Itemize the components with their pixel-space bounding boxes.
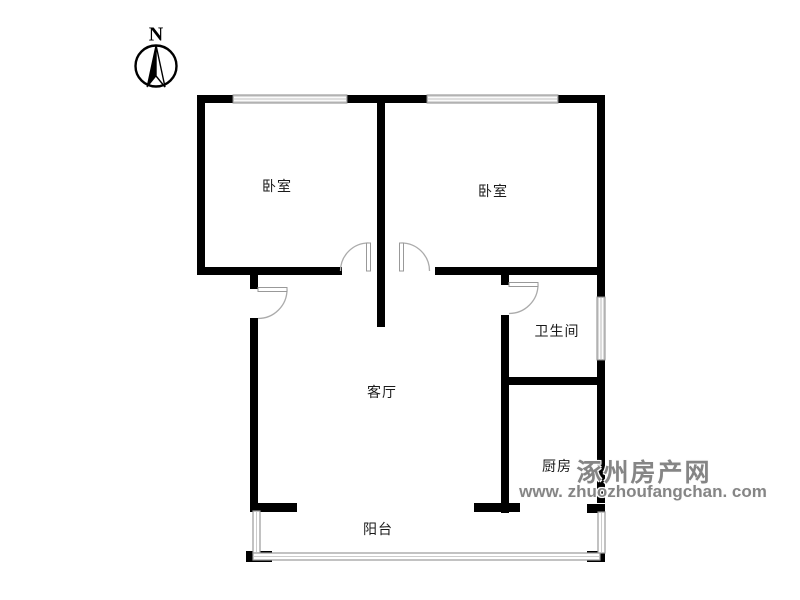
watermark-url: www. zhuozhoufangchan. com xyxy=(519,482,767,502)
wall-top-middle-segment xyxy=(347,95,427,103)
compass-needle-light xyxy=(156,45,165,87)
room-label-bedroom-left: 卧室 xyxy=(262,176,292,196)
window-top-right xyxy=(427,95,558,103)
door-bedroom-left xyxy=(341,243,371,271)
balcony-railing xyxy=(253,511,605,560)
wall-bedrooms-bottom-right xyxy=(435,267,605,275)
wall-bathroom-bottom xyxy=(501,377,605,385)
wall-kitchen-left xyxy=(501,385,509,513)
compass-north-label: N xyxy=(149,24,163,47)
wall-bottom-middle-segment xyxy=(474,503,520,512)
wall-left-exterior xyxy=(197,95,205,275)
door-bathroom xyxy=(509,283,538,314)
room-label-kitchen: 厨房 xyxy=(542,456,572,476)
north-compass-icon xyxy=(136,45,177,87)
wall-bedroom-divider xyxy=(377,103,385,327)
door-bedroom-right xyxy=(400,243,430,271)
room-label-bedroom-right: 卧室 xyxy=(478,181,508,201)
floor-plan: N 卧室 卧室 卫生间 客厅 厨房 阳台 涿州房产网 www. zhuozhou… xyxy=(0,0,800,600)
room-label-bathroom: 卫生间 xyxy=(535,321,580,341)
room-label-balcony: 阳台 xyxy=(363,519,393,539)
window-top-left xyxy=(233,95,347,103)
window-right-bathroom xyxy=(597,297,605,360)
wall-living-left-stub xyxy=(250,275,258,289)
wall-bathroom-left xyxy=(501,315,509,383)
room-label-living-room: 客厅 xyxy=(367,382,397,402)
wall-right-upper xyxy=(597,95,605,297)
floor-plan-drawing xyxy=(0,0,800,600)
wall-living-left xyxy=(250,318,258,511)
doors xyxy=(258,243,538,319)
wall-bedrooms-bottom-left xyxy=(197,267,342,275)
compass-needle-dark xyxy=(147,45,156,87)
door-entry xyxy=(258,288,287,319)
wall-bathroom-left-stub xyxy=(501,275,509,285)
